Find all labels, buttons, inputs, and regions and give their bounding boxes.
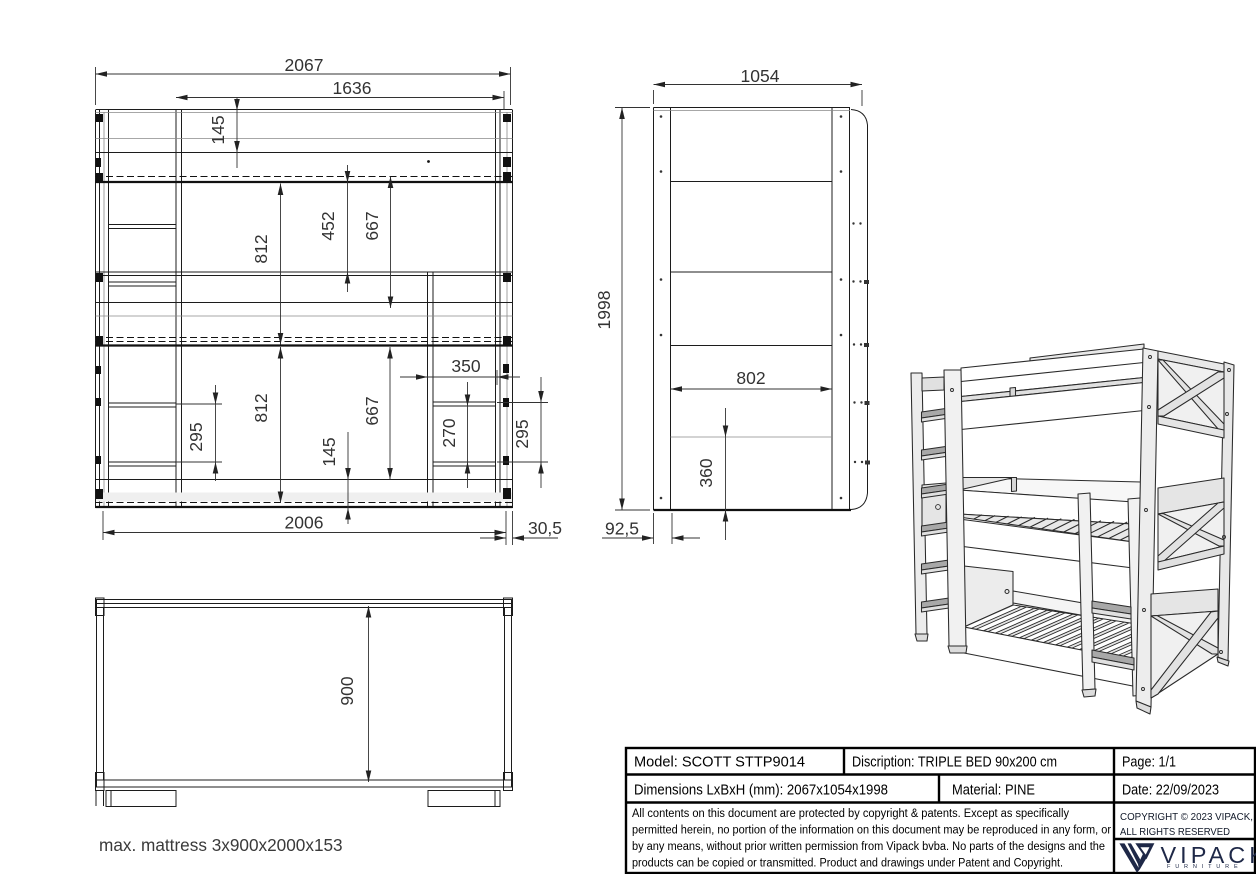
svg-text:812: 812 [251,234,271,263]
svg-text:Discription: TRIPLE BED 90x200: Discription: TRIPLE BED 90x200 cm [852,754,1057,771]
svg-text:452: 452 [318,211,338,240]
svg-text:1054: 1054 [741,66,780,86]
svg-text:Dimensions LxBxH (mm): 2067x10: Dimensions LxBxH (mm): 2067x1054x1998 [634,782,888,799]
svg-text:145: 145 [319,437,339,466]
svg-text:COPYRIGHT © 2023 VIPACK,: COPYRIGHT © 2023 VIPACK, [1120,811,1253,823]
svg-text:667: 667 [362,211,382,240]
svg-text:All contents on this document: All contents on this document are protec… [632,808,1069,820]
svg-text:295: 295 [512,419,532,448]
svg-text:812: 812 [251,393,271,422]
svg-text:30,5: 30,5 [528,518,562,538]
svg-text:Date: 22/09/2023: Date: 22/09/2023 [1122,782,1219,799]
svg-text:FURNITURE: FURNITURE [1167,864,1243,870]
svg-text:max. mattress 3x900x2000x153: max. mattress 3x900x2000x153 [99,835,343,855]
svg-text:by any means, without prior wr: by any means, without prior written perm… [632,841,1105,853]
svg-text:900: 900 [337,676,357,705]
svg-text:295: 295 [186,422,206,451]
svg-text:802: 802 [736,368,765,388]
svg-text:permitted herein, no portion o: permitted herein, no portion of the info… [632,825,1111,837]
svg-text:350: 350 [451,356,480,376]
svg-text:1636: 1636 [333,78,372,98]
svg-text:ALL RIGHTS RESERVED: ALL RIGHTS RESERVED [1120,826,1230,838]
svg-text:667: 667 [362,396,382,425]
svg-text:products can be copied or tran: products can be copied or transmitted. P… [632,858,1063,870]
svg-text:92,5: 92,5 [605,519,639,539]
svg-text:270: 270 [439,418,459,447]
svg-text:Model: SCOTT STTP9014: Model: SCOTT STTP9014 [634,754,805,771]
svg-text:Material: PINE: Material: PINE [952,782,1035,799]
svg-text:360: 360 [696,458,716,487]
svg-text:2067: 2067 [285,55,324,75]
svg-text:Page: 1/1: Page: 1/1 [1122,754,1176,771]
svg-text:2006: 2006 [285,513,324,533]
svg-text:145: 145 [208,115,228,144]
svg-text:1998: 1998 [594,291,614,330]
